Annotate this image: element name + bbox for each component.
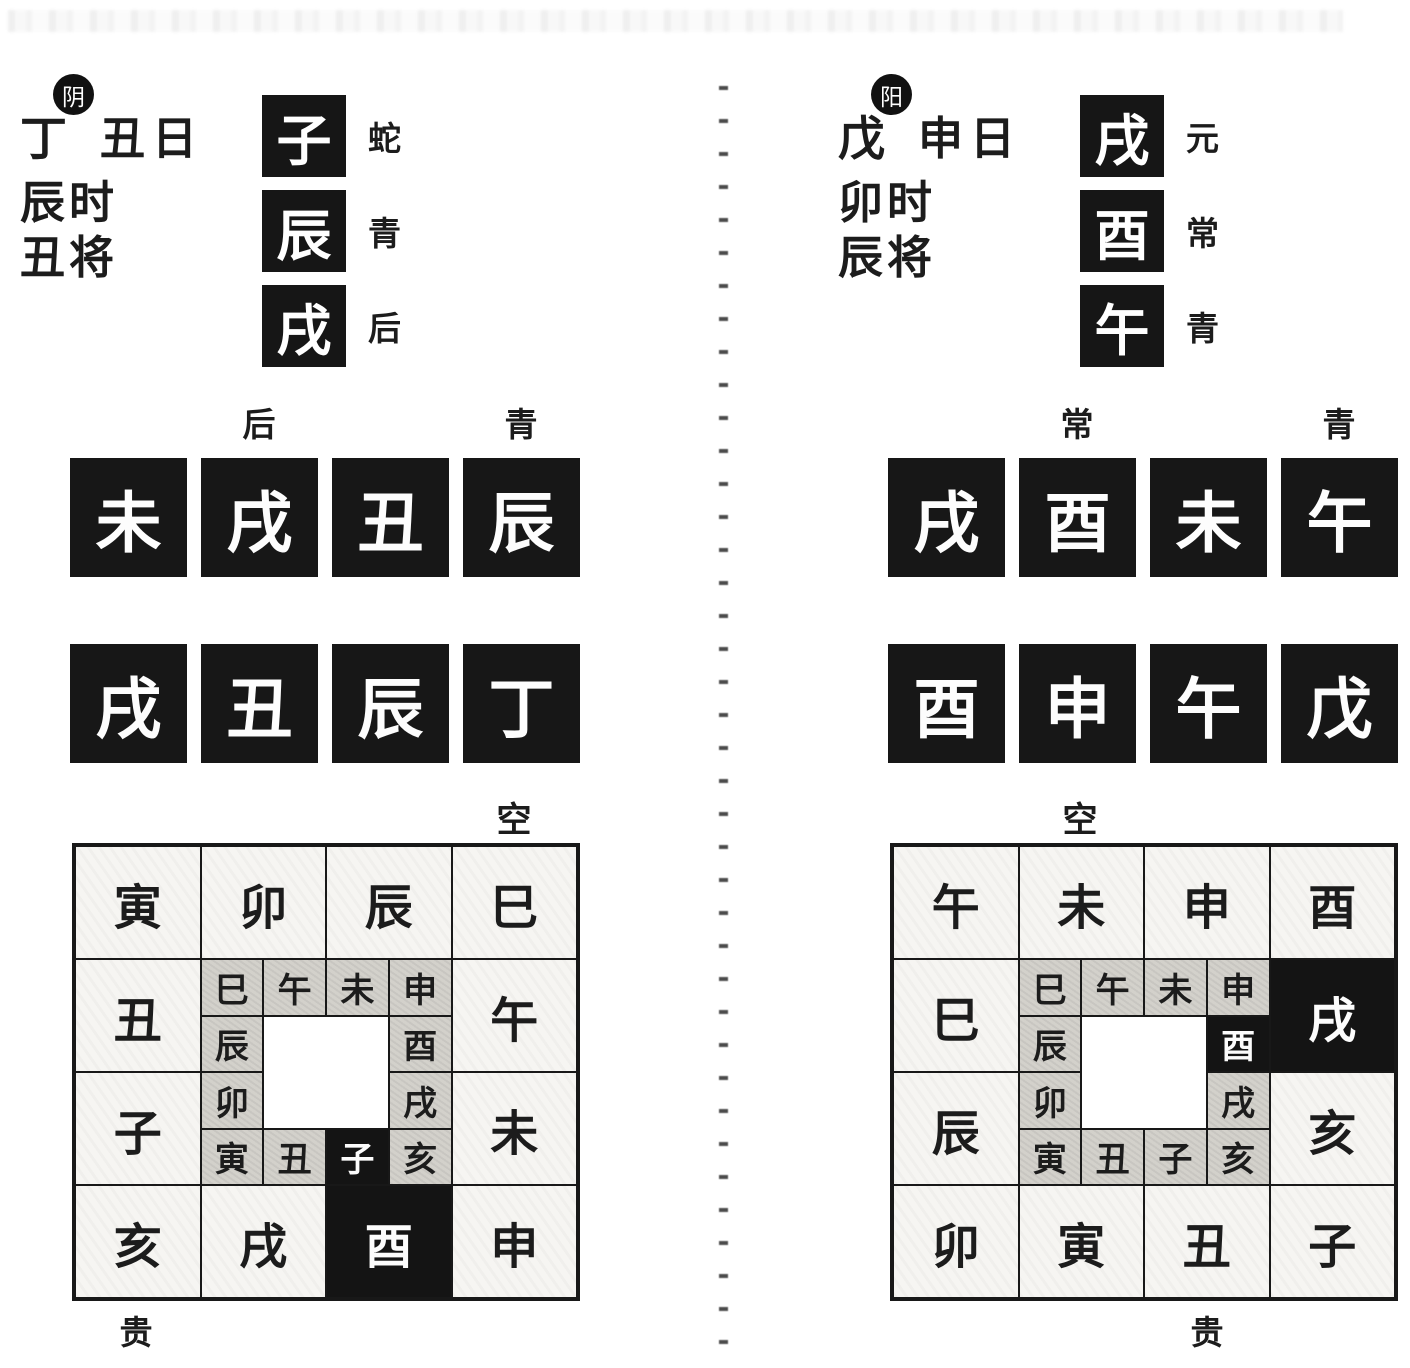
lesson-row-upper: 戌 酉 未 午 <box>888 458 1400 577</box>
transmission-deity-label: 青 <box>1186 302 1219 350</box>
monthly-general-label: 辰将 <box>838 221 936 286</box>
lesson-box: 戌 <box>888 458 1005 577</box>
lesson-box: 辰 <box>332 644 449 763</box>
plate-cell-inner: 辰 <box>201 1016 264 1073</box>
lesson-box: 辰 <box>463 458 580 577</box>
plate-cell-outer: 丑 <box>75 959 201 1072</box>
plate-cell-outer: 辰 <box>326 846 452 959</box>
plate-cell-inner: 未 <box>326 959 389 1016</box>
plate-cell-inner: 丑 <box>1081 1129 1144 1186</box>
transmission-row: 戌 后 <box>262 285 401 367</box>
plate-cell-outer: 寅 <box>75 846 201 959</box>
transmission-row: 辰 青 <box>262 190 401 272</box>
lesson-box: 戌 <box>70 644 187 763</box>
plate-cell-outer: 亥 <box>75 1185 201 1298</box>
lesson-box: 戊 <box>1281 644 1398 763</box>
lesson-box: 丁 <box>463 644 580 763</box>
plate-center-hole <box>263 1016 389 1129</box>
plate-cell-outer: 未 <box>452 1072 578 1185</box>
lesson-deity-label: 后 <box>243 398 276 446</box>
transmission-branch-box: 酉 <box>1080 190 1164 272</box>
transmission-row: 酉 常 <box>1080 190 1219 272</box>
plate-cell-inner: 辰 <box>1019 1016 1082 1073</box>
left-chart: 丁 阴 丑日 辰时 丑将 子 蛇 辰 青 戌 后 后 青 未 戌 丑 辰 戌 丑… <box>0 0 640 1368</box>
plate-label-gui: 贵 <box>1191 1306 1224 1354</box>
monthly-general-label: 丑将 <box>20 221 118 286</box>
plate-cell-inner: 丑 <box>263 1129 326 1186</box>
dotted-column-divider <box>719 86 728 1368</box>
plate-cell-outer: 申 <box>452 1185 578 1298</box>
lesson-row-upper: 未 戌 丑 辰 <box>70 458 582 577</box>
transmission-branch-box: 戌 <box>1080 95 1164 177</box>
transmission-branch-box: 午 <box>1080 285 1164 367</box>
transmission-deity-label: 蛇 <box>368 112 401 160</box>
lesson-box: 酉 <box>888 644 1005 763</box>
plate-cell-outer: 丑 <box>1144 1185 1270 1298</box>
plate-cell-inner: 亥 <box>389 1129 452 1186</box>
lesson-deity-label: 青 <box>505 398 538 446</box>
lesson-row-lower: 酉 申 午 戊 <box>888 644 1400 763</box>
plate-cell-outer: 寅 <box>1019 1185 1145 1298</box>
plate-cell-inner: 亥 <box>1207 1129 1270 1186</box>
heaven-earth-plate: 寅 卯 辰 巳 丑 午 子 未 亥 戌 酉 申 巳 午 未 申 辰 酉 卯 戌 … <box>72 843 580 1301</box>
plate-cell-outer: 酉 <box>1270 846 1396 959</box>
plate-cell-inner: 寅 <box>1019 1129 1082 1186</box>
lesson-box: 午 <box>1281 458 1398 577</box>
lesson-box: 申 <box>1019 644 1136 763</box>
yin-yang-badge: 阴 <box>53 74 94 115</box>
lesson-deity-label: 青 <box>1323 398 1356 446</box>
plate-cell-inner: 卯 <box>1019 1072 1082 1129</box>
lesson-row-lower: 戌 丑 辰 丁 <box>70 644 582 763</box>
plate-cell-outer: 巳 <box>893 959 1019 1072</box>
plate-cell-outer: 申 <box>1144 846 1270 959</box>
transmission-branch-box: 辰 <box>262 190 346 272</box>
plate-cell-outer: 卯 <box>893 1185 1019 1298</box>
plate-cell-inner: 戌 <box>389 1072 452 1129</box>
day-branch: 丑日 <box>100 102 204 167</box>
plate-cell-inner: 巳 <box>1019 959 1082 1016</box>
plate-cell-outer: 戌 <box>201 1185 327 1298</box>
plate-cell-inner: 子 <box>1144 1129 1207 1186</box>
plate-label-kong: 空 <box>1062 792 1097 843</box>
plate-cell-inner: 卯 <box>201 1072 264 1129</box>
transmission-row: 戌 元 <box>1080 95 1219 177</box>
yin-yang-badge: 阳 <box>871 74 912 115</box>
lesson-box: 酉 <box>1019 458 1136 577</box>
plate-cell-inner: 申 <box>1207 959 1270 1016</box>
day-branch: 申日 <box>918 102 1022 167</box>
transmission-row: 午 青 <box>1080 285 1219 367</box>
lesson-box: 午 <box>1150 644 1267 763</box>
plate-cell-outer-highlighted: 戌 <box>1270 959 1396 1072</box>
lesson-box: 未 <box>70 458 187 577</box>
heaven-earth-plate: 午 未 申 酉 巳 戌 辰 亥 卯 寅 丑 子 巳 午 未 申 辰 酉 卯 戌 … <box>890 843 1398 1301</box>
lesson-box: 丑 <box>332 458 449 577</box>
plate-cell-outer: 辰 <box>893 1072 1019 1185</box>
plate-cell-outer: 子 <box>75 1072 201 1185</box>
plate-cell-inner: 午 <box>263 959 326 1016</box>
plate-cell-inner: 午 <box>1081 959 1144 1016</box>
transmission-deity-label: 青 <box>368 207 401 255</box>
plate-cell-outer-highlighted: 酉 <box>326 1185 452 1298</box>
plate-cell-outer: 午 <box>893 846 1019 959</box>
lesson-box: 未 <box>1150 458 1267 577</box>
plate-cell-outer: 子 <box>1270 1185 1396 1298</box>
plate-cell-outer: 卯 <box>201 846 327 959</box>
transmission-deity-label: 常 <box>1186 207 1219 255</box>
plate-cell-inner: 申 <box>389 959 452 1016</box>
plate-cell-inner: 巳 <box>201 959 264 1016</box>
plate-cell-inner: 寅 <box>201 1129 264 1186</box>
transmission-deity-label: 后 <box>368 302 401 350</box>
plate-cell-outer: 巳 <box>452 846 578 959</box>
lesson-deity-label: 常 <box>1061 398 1094 446</box>
plate-label-gui: 贵 <box>120 1306 153 1354</box>
plate-cell-inner-highlighted: 酉 <box>1207 1016 1270 1073</box>
transmission-row: 子 蛇 <box>262 95 401 177</box>
plate-cell-outer: 亥 <box>1270 1072 1396 1185</box>
plate-cell-inner: 戌 <box>1207 1072 1270 1129</box>
right-chart: 戊 阳 申日 卯时 辰将 戌 元 酉 常 午 青 常 青 戌 酉 未 午 酉 申… <box>818 0 1410 1368</box>
lesson-box: 戌 <box>201 458 318 577</box>
plate-cell-inner-highlighted: 子 <box>326 1129 389 1186</box>
transmission-branch-box: 戌 <box>262 285 346 367</box>
plate-center-hole <box>1081 1016 1207 1129</box>
plate-cell-inner: 酉 <box>389 1016 452 1073</box>
plate-cell-inner: 未 <box>1144 959 1207 1016</box>
transmission-branch-box: 子 <box>262 95 346 177</box>
plate-cell-outer: 未 <box>1019 846 1145 959</box>
plate-cell-outer: 午 <box>452 959 578 1072</box>
transmission-deity-label: 元 <box>1186 112 1219 160</box>
lesson-box: 丑 <box>201 644 318 763</box>
plate-label-kong: 空 <box>496 792 531 843</box>
